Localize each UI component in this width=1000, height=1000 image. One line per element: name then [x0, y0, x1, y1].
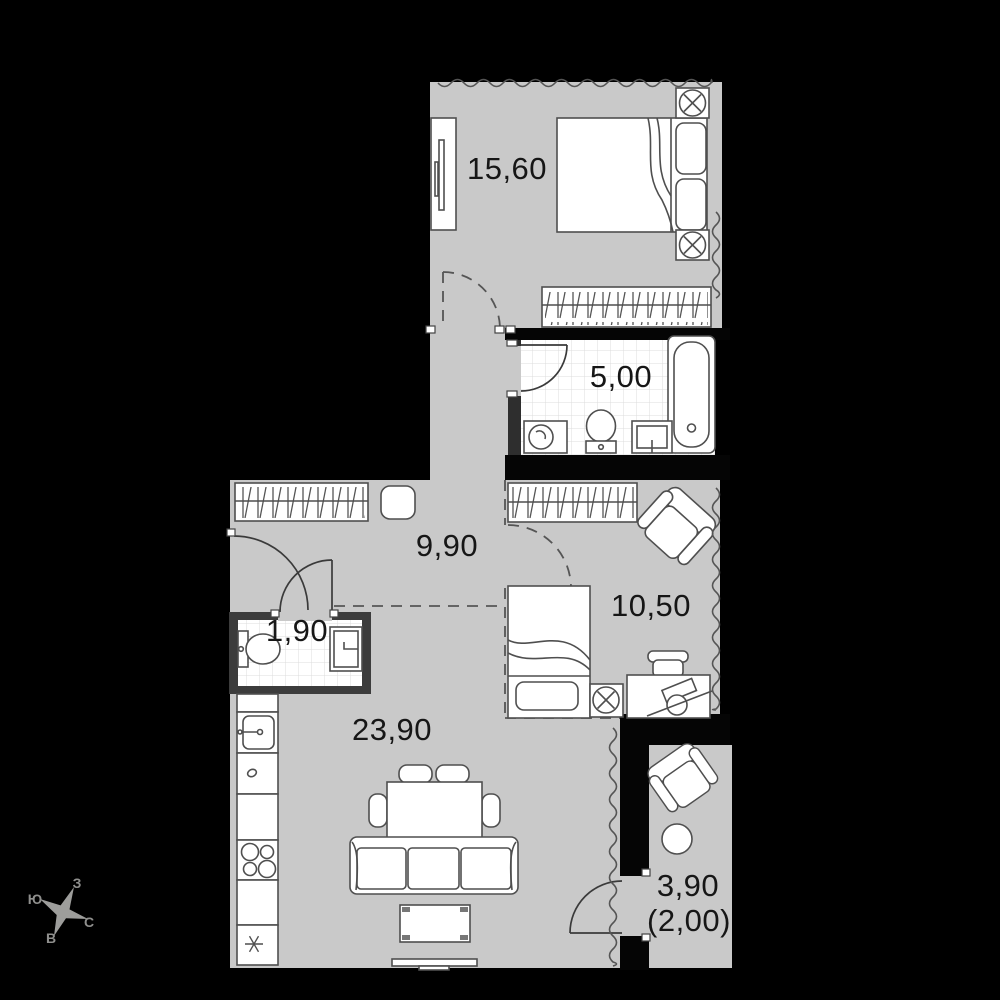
- tv-icon: [392, 959, 477, 970]
- compass-letter-left: Ю: [28, 891, 42, 907]
- washbasin-icon: [632, 421, 672, 453]
- chair-icon: [399, 765, 432, 783]
- pouf-icon: [381, 486, 415, 519]
- sofa-icon: [350, 837, 518, 894]
- wardrobe-hangers-icon: [542, 287, 711, 327]
- kitchen-counter: [237, 694, 278, 965]
- nightstand-lamp-icon: [676, 230, 709, 260]
- bathtub-icon: [668, 336, 715, 453]
- room-label-kitchen-living: 23,90: [352, 712, 432, 748]
- room-label-balcony-secondary: (2,00): [647, 903, 731, 939]
- floor-plan-drawing: [0, 0, 1000, 1000]
- corridor-floor: [370, 604, 510, 694]
- round-table-icon: [662, 824, 692, 854]
- room-label-hallway: 9,90: [416, 528, 478, 564]
- compass-letter-top: З: [73, 875, 82, 891]
- single-bed-icon: [508, 586, 590, 718]
- washing-machine-icon: [524, 421, 567, 453]
- hallway-strip-floor: [430, 270, 510, 485]
- compass-letter-right: С: [84, 914, 94, 930]
- desk-chair-icon: [648, 651, 688, 677]
- kitchen-sink-icon: [238, 716, 274, 749]
- room-label-balcony: 3,90: [657, 868, 719, 904]
- wardrobe-hangers-icon: [508, 483, 637, 522]
- wall-living-balcony-top: [620, 745, 649, 876]
- desk-icon: [627, 675, 712, 718]
- washbasin-icon: [330, 627, 362, 671]
- floor-plan-canvas: 15,60 5,00 9,90 10,50 1,90 23,90 3,90 (2…: [0, 0, 1000, 1000]
- wardrobe-hangers-icon: [235, 483, 368, 521]
- room-label-bedroom: 15,60: [467, 151, 547, 187]
- bathroom-door-gap: [508, 346, 521, 396]
- compass-letter-bottom: В: [46, 930, 56, 946]
- hallway-furniture: [235, 483, 415, 521]
- room-label-bedroom-2: 10,50: [611, 588, 691, 624]
- balcony-doorway-floor: [620, 876, 649, 936]
- compass-rose-icon: [40, 887, 88, 936]
- double-bed-icon: [557, 118, 707, 232]
- nightstand-lamp-icon: [676, 88, 709, 118]
- chair-icon: [436, 765, 469, 783]
- toilet-icon: [586, 410, 616, 453]
- room-label-bathroom: 5,00: [590, 359, 652, 395]
- chair-icon: [369, 794, 387, 827]
- chair-icon: [482, 794, 500, 827]
- nightstand-lamp-icon: [590, 684, 623, 717]
- wall-below-bathroom: [505, 455, 730, 480]
- mirror-wardrobe-icon: [431, 118, 456, 230]
- room-label-wc: 1,90: [266, 613, 328, 649]
- coffee-table-icon: [400, 905, 470, 942]
